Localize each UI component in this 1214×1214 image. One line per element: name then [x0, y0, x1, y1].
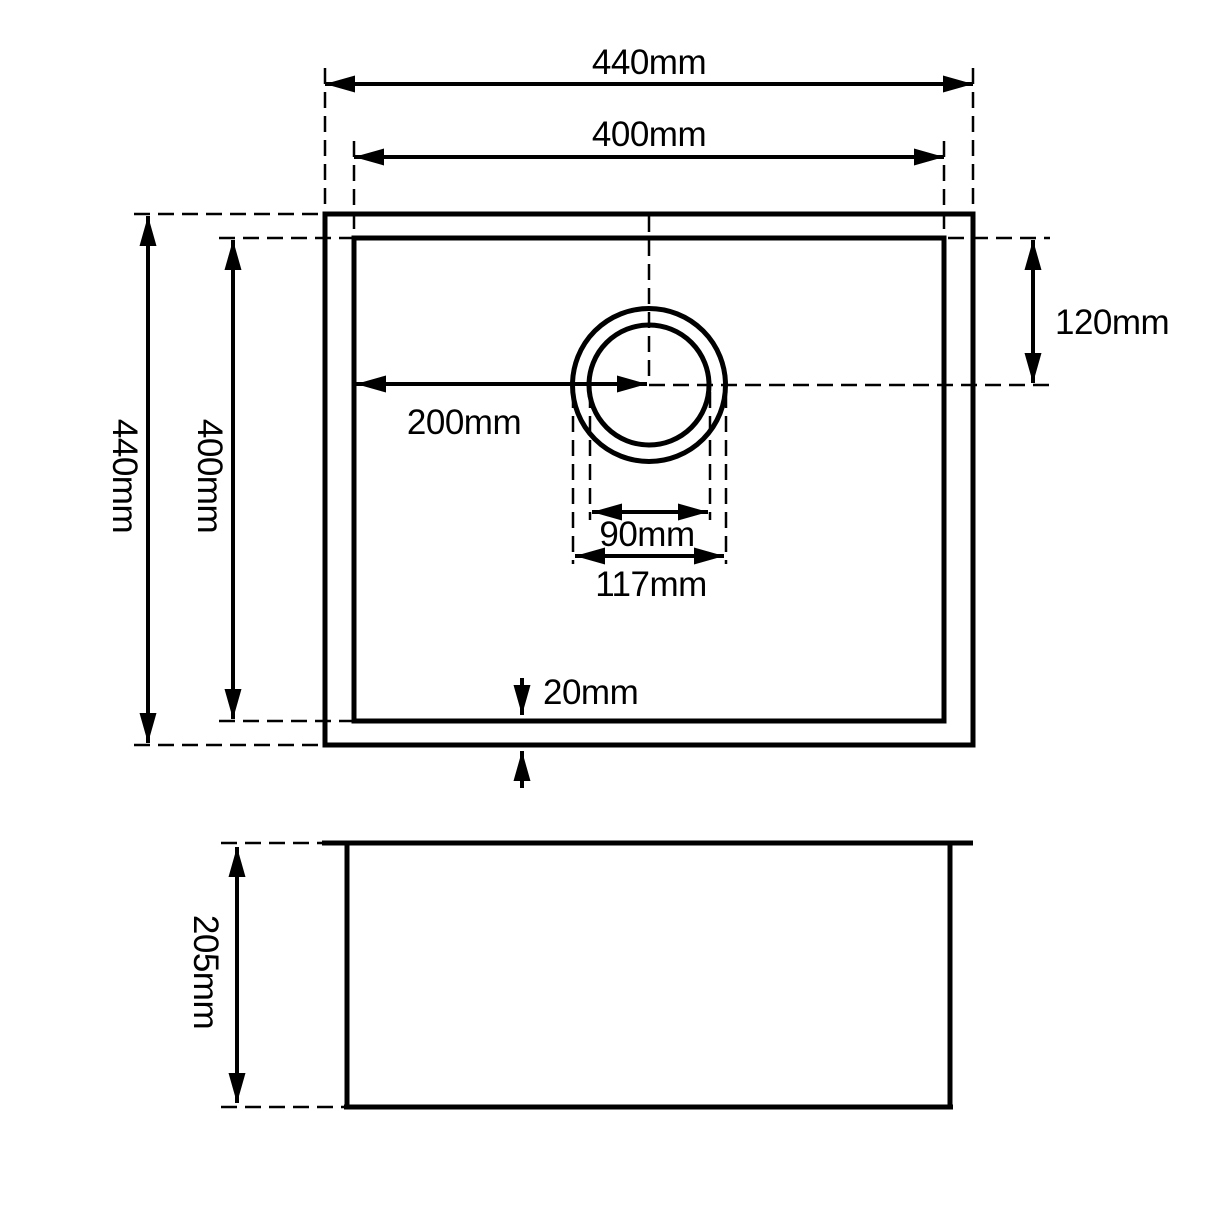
dim-drain-offset-left: 200mm	[356, 384, 647, 442]
dim-outer-width-label: 440mm	[592, 43, 706, 82]
dim-drain-offset-top: 120mm	[948, 238, 1169, 383]
drawing-canvas: 440mm 400mm 440mm 400mm 120mm	[0, 0, 1214, 1214]
sink-technical-drawing: 440mm 400mm 440mm 400mm 120mm	[0, 0, 1214, 1214]
dim-bowl-depth: 205mm	[186, 843, 348, 1107]
dim-inner-depth: 400mm	[190, 238, 358, 721]
side-view	[322, 843, 973, 1107]
dim-rim-thickness: 20mm	[522, 673, 638, 788]
dim-drain-offset-left-label: 200mm	[407, 403, 521, 442]
dim-drain-outer-label: 117mm	[595, 565, 707, 604]
dim-drain-inner-diameter: 90mm	[590, 392, 710, 554]
dim-drain-inner-label: 90mm	[599, 515, 694, 554]
dim-outer-depth-label: 440mm	[105, 419, 144, 533]
dim-inner-depth-label: 400mm	[190, 419, 229, 533]
dim-rim-thickness-label: 20mm	[543, 673, 638, 712]
dim-inner-width-label: 400mm	[592, 115, 706, 154]
dim-drain-outer-diameter: 117mm	[573, 392, 726, 604]
dim-drain-offset-top-label: 120mm	[1055, 303, 1169, 342]
dim-bowl-depth-label: 205mm	[186, 915, 225, 1029]
top-view	[325, 214, 1050, 745]
